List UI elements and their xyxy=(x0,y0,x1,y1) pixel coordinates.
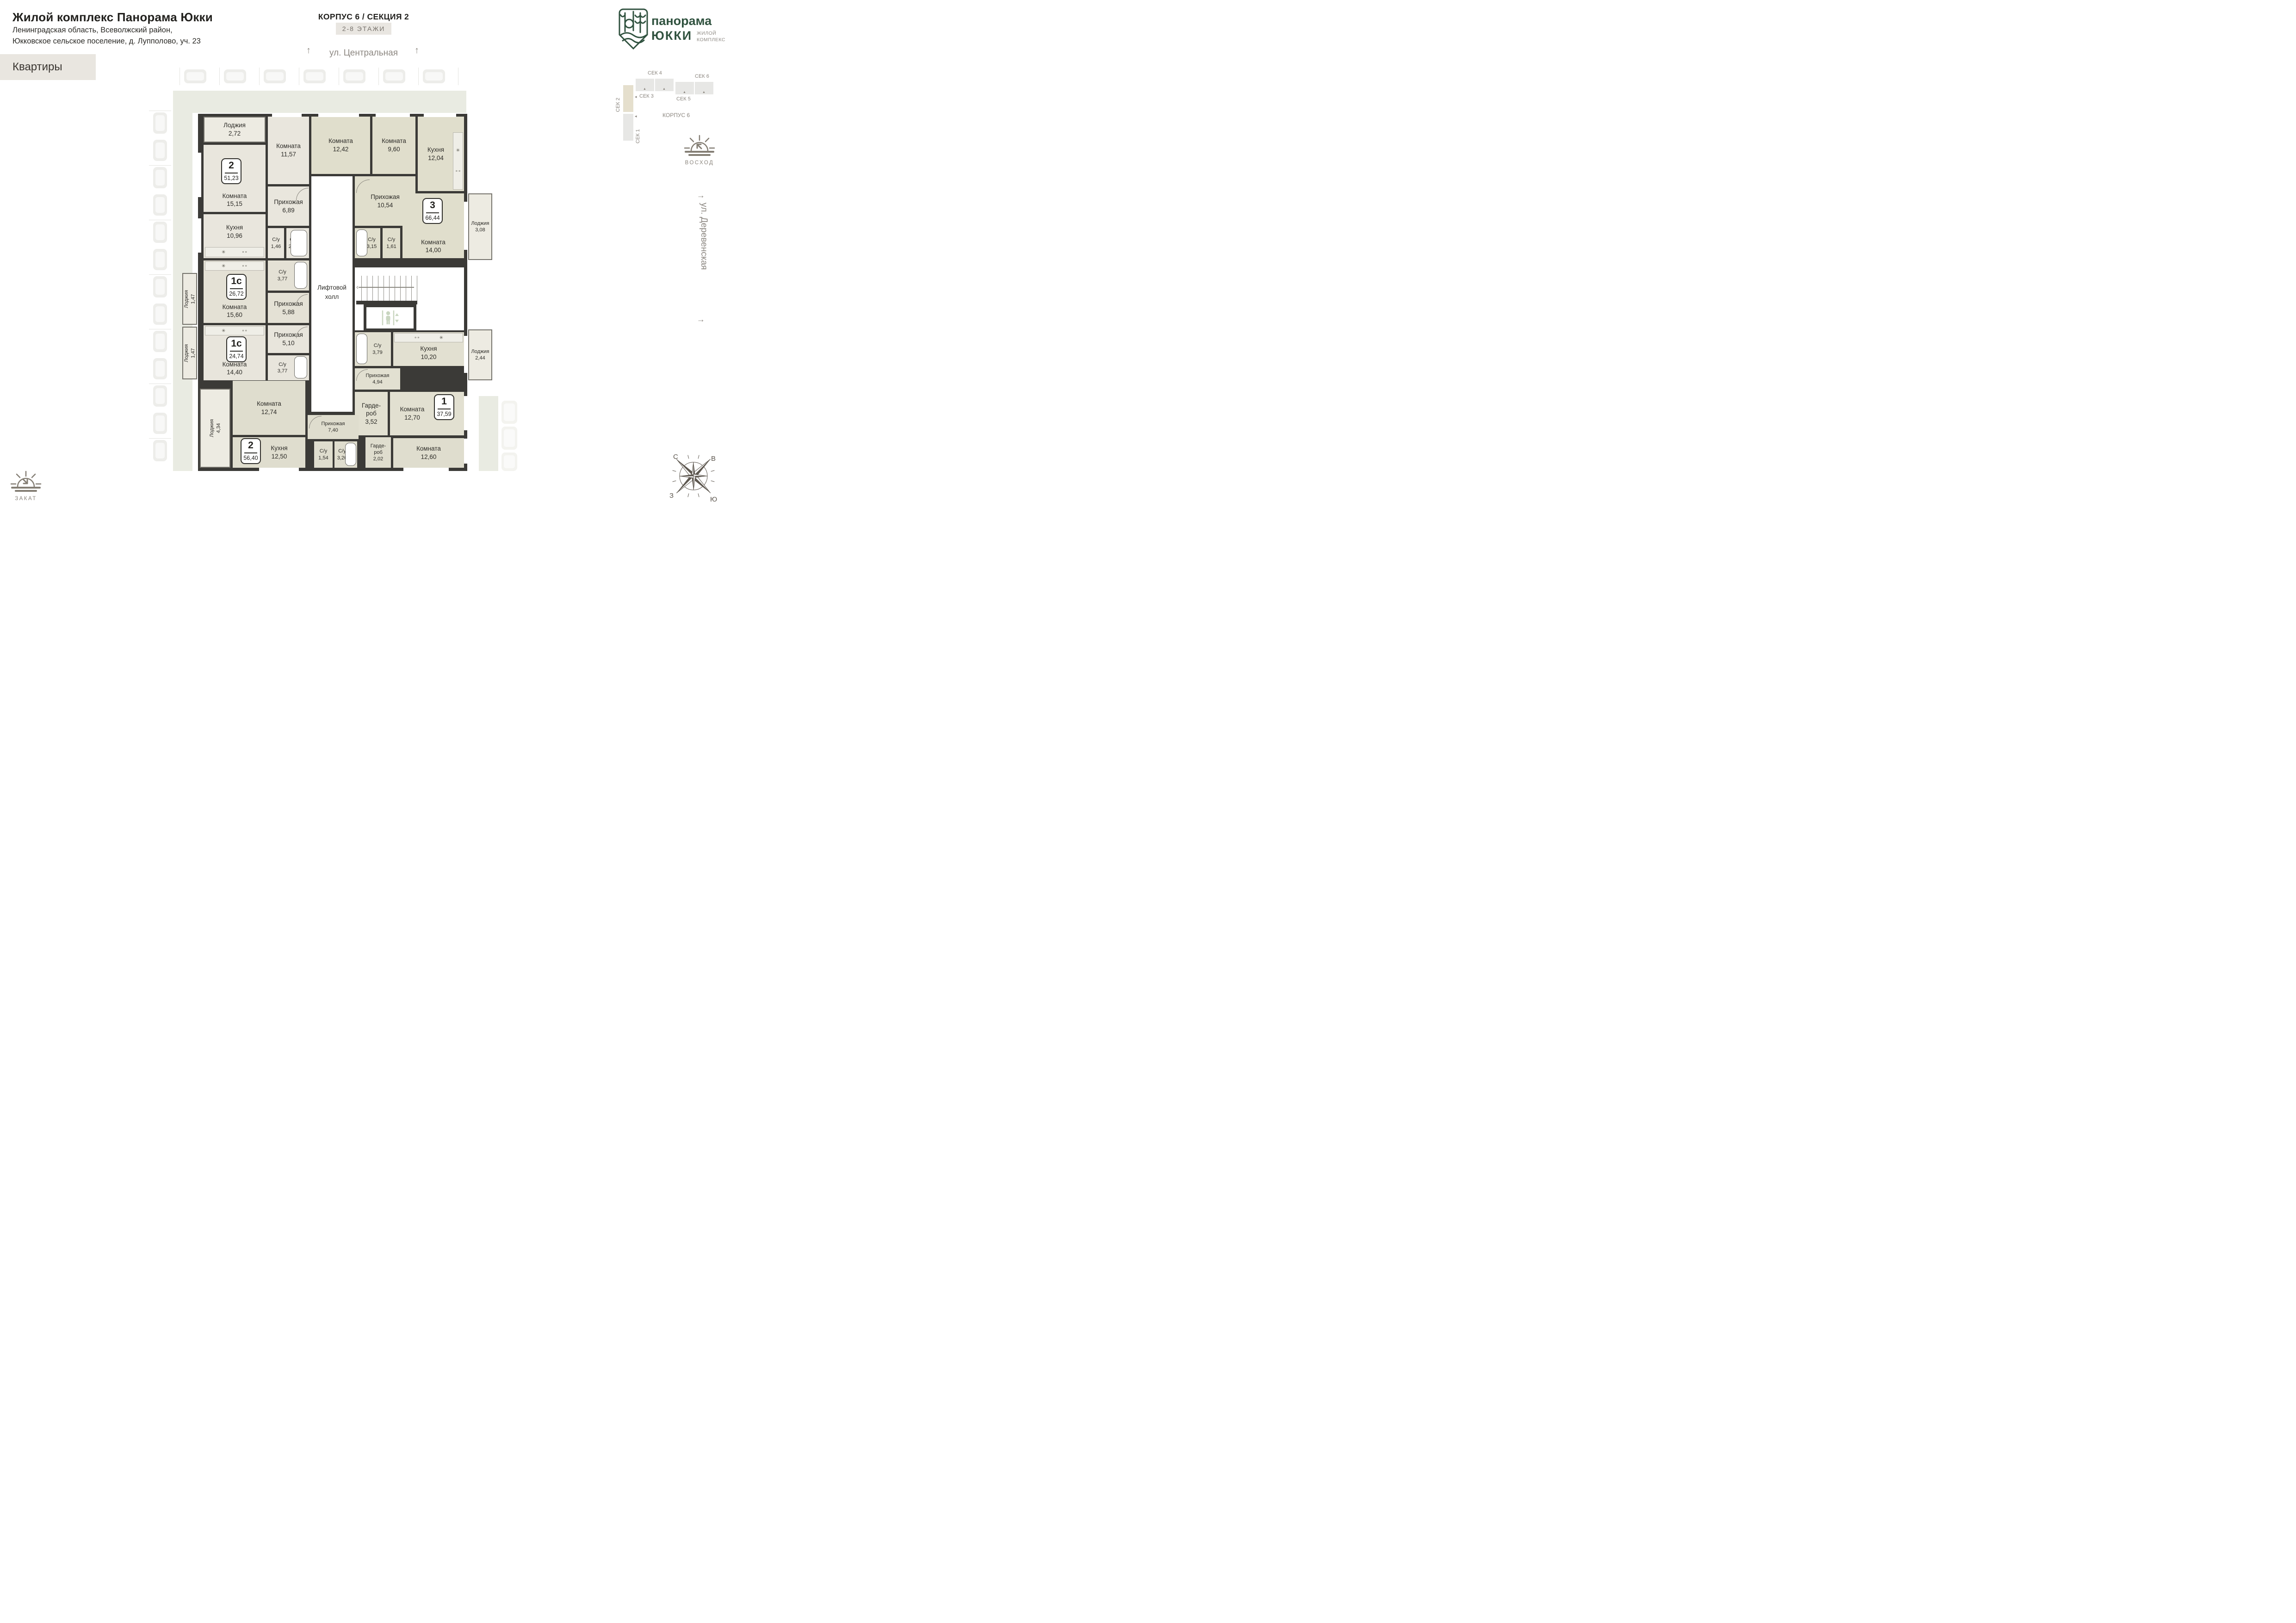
logo-tagline-1: ЖИЛОЙ xyxy=(697,31,716,36)
stove-icon: ∘∘ xyxy=(241,264,248,269)
sink-icon: ✳ xyxy=(222,250,225,255)
car-icon xyxy=(153,112,167,134)
logo-tagline-2: КОМПЛЕКС xyxy=(697,37,725,43)
sink-icon: ✳ xyxy=(222,328,225,334)
minimap-label-sec1: СЕК 1 xyxy=(635,119,641,143)
car-icon xyxy=(501,401,517,424)
logo-brand-bottom: ЮККИ xyxy=(651,29,692,43)
parking-divider xyxy=(149,274,171,275)
car-icon xyxy=(224,69,246,83)
parking-divider xyxy=(458,68,458,85)
bathtub xyxy=(294,356,307,378)
car-icon xyxy=(501,452,517,471)
compass-north-label: С xyxy=(673,453,678,461)
car-icon xyxy=(303,69,326,83)
minimap-label-sec5: СЕК 5 xyxy=(676,96,691,102)
room-loggia-1-47-lower[interactable]: Лоджия1,47 xyxy=(182,327,197,379)
room-komnata-12-74[interactable]: Комната12,74 xyxy=(233,381,305,435)
floorplan-page: Жилой комплекс Панорама Юкки Ленинградск… xyxy=(0,0,725,513)
car-icon xyxy=(153,385,167,407)
entrance-marker-icon: ▲ xyxy=(683,91,686,94)
stairs-arrow-icon: ‹ xyxy=(356,283,359,291)
entrance-marker-icon: ▲ xyxy=(702,91,706,94)
window xyxy=(376,114,410,117)
window xyxy=(198,218,201,253)
parking-divider xyxy=(149,220,171,220)
apartment-badge-2-5640[interactable]: 256,40 xyxy=(241,438,261,464)
wall-segment xyxy=(356,301,417,304)
floors-range: 2-8 ЭТАЖИ xyxy=(296,23,431,35)
lift-hall-label: Лифтовойхолл xyxy=(311,283,353,301)
compass-east-label: В xyxy=(711,455,716,463)
parking-divider xyxy=(418,68,419,85)
stove-icon: ∘∘ xyxy=(241,328,248,334)
bathtub xyxy=(291,230,307,256)
stairs xyxy=(356,276,417,301)
sunset-label: ЗАКАТ xyxy=(7,496,44,502)
car-icon xyxy=(153,222,167,243)
window xyxy=(464,439,467,464)
car-icon xyxy=(153,358,167,379)
parking-divider xyxy=(149,329,171,329)
window xyxy=(464,396,467,430)
room-komnata-12-60[interactable]: Комната12,60 xyxy=(393,438,464,468)
minimap-sec1-block[interactable] xyxy=(623,114,633,141)
entrance-marker-icon: ▲ xyxy=(662,87,666,91)
street-band-right xyxy=(479,396,498,471)
car-icon xyxy=(343,69,365,83)
minimap-corpus-label: КОРПУС 6 xyxy=(662,112,690,118)
room-loggia-3-08[interactable]: Лоджия3,08 xyxy=(468,193,492,260)
room-loggia-2-44[interactable]: Лоджия2,44 xyxy=(468,329,492,380)
car-icon xyxy=(153,413,167,434)
logo-brand-top: панорама xyxy=(651,14,712,28)
car-icon xyxy=(153,440,167,461)
car-icon xyxy=(383,69,405,83)
car-icon xyxy=(423,69,445,83)
car-icon xyxy=(153,276,167,297)
parking-divider xyxy=(219,68,220,85)
car-icon xyxy=(153,331,167,352)
arrow-left-icon: ◂ xyxy=(635,94,637,99)
sink-icon: ✳ xyxy=(456,148,460,153)
street-label-top: ул. Центральная xyxy=(296,48,431,58)
logo-shield-icon xyxy=(619,8,648,50)
apartment-badge-1s-2474[interactable]: 1с24,74 xyxy=(226,336,247,362)
arrow-right-icon: → xyxy=(697,191,705,200)
window xyxy=(198,153,201,197)
room-loggia-4-34[interactable]: Лоджия4,34 xyxy=(200,389,230,468)
parking-divider xyxy=(149,384,171,384)
room-loggia-2-72[interactable]: Лоджия2,72 xyxy=(204,117,266,142)
car-icon xyxy=(153,140,167,161)
minimap-label-sec4: СЕК 4 xyxy=(648,70,662,76)
car-icon xyxy=(153,304,167,325)
sunset-icon xyxy=(10,470,42,494)
minimap-label-sec2: СЕК 2 xyxy=(615,85,621,112)
parking-divider xyxy=(259,68,260,85)
address-line-1: Ленинградская область, Всеволжский район… xyxy=(12,26,173,35)
kitchen-counter: ✳∘∘ xyxy=(205,247,264,257)
room-su-1-61[interactable]: С/у1,61 xyxy=(383,228,400,258)
minimap-label-sec3: СЕК 3 xyxy=(639,93,654,99)
compass-rose: С В З Ю xyxy=(665,447,722,505)
street-label-right: ул. Деревенская xyxy=(699,203,709,312)
room-komnata-11-57[interactable]: Комната11,57 xyxy=(268,117,309,184)
car-icon xyxy=(153,167,167,188)
arrow-left-icon: ◂ xyxy=(635,114,637,119)
arrow-up-icon: ↑ xyxy=(415,45,419,56)
elevator-icon xyxy=(380,310,400,326)
apartment-badge-2-5123[interactable]: 251,23 xyxy=(221,158,241,184)
kitchen-counter: ✳∘∘ xyxy=(205,261,264,271)
kitchen-counter: ✳∘∘ xyxy=(453,132,463,190)
bathtub xyxy=(356,334,367,364)
street-band-top xyxy=(173,91,466,113)
minimap-sec2-block-current[interactable] xyxy=(623,85,633,112)
car-icon xyxy=(264,69,286,83)
car-icon xyxy=(501,427,517,450)
bathtub xyxy=(294,262,307,289)
parking-divider xyxy=(378,68,379,85)
room-su-1-46[interactable]: С/у1,46 xyxy=(268,228,284,258)
tab-apartments[interactable]: Квартиры xyxy=(0,54,96,80)
window xyxy=(259,468,299,471)
stove-icon: ∘∘ xyxy=(414,335,420,341)
car-icon xyxy=(184,69,206,83)
window xyxy=(403,468,449,471)
parking-divider xyxy=(299,68,299,85)
car-icon xyxy=(153,194,167,216)
kitchen-counter: ✳∘∘ xyxy=(205,326,264,335)
arrow-right-icon: → xyxy=(697,315,705,324)
arrow-up-icon: ↑ xyxy=(306,45,311,56)
parking-divider xyxy=(149,438,171,439)
compass-west-label: З xyxy=(669,492,674,500)
stove-icon: ∘∘ xyxy=(241,250,248,255)
stove-icon: ∘∘ xyxy=(455,169,461,174)
stairs-direction-line xyxy=(359,287,414,288)
room-komnata-9-60[interactable]: Комната9,60 xyxy=(372,117,415,174)
corpus-section-title: КОРПУС 6 / СЕКЦИЯ 2 xyxy=(296,12,431,22)
bathtub xyxy=(345,443,356,466)
apartment-badge-3-6644[interactable]: 366,44 xyxy=(422,198,443,224)
room-garderob-2-02[interactable]: Гарде- роб2,02 xyxy=(365,437,391,468)
page-title: Жилой комплекс Панорама Юкки xyxy=(12,10,213,25)
room-garderob-3-52[interactable]: Гарде- роб3,52 xyxy=(355,392,388,435)
entrance-marker-icon: ▲ xyxy=(643,87,646,91)
minimap-label-sec6: СЕК 6 xyxy=(695,74,709,79)
window xyxy=(318,114,359,117)
car-icon xyxy=(153,249,167,270)
sunrise-label: ВОСХОД xyxy=(681,160,718,166)
apartment-badge-1s-2672[interactable]: 1с26,72 xyxy=(226,274,247,300)
window xyxy=(464,336,467,373)
compass-south-label: Ю xyxy=(710,496,717,503)
parking-divider xyxy=(149,165,171,166)
sunrise-icon xyxy=(684,134,715,158)
parking-divider xyxy=(339,68,339,85)
window xyxy=(424,114,456,117)
room-loggia-1-47-upper[interactable]: Лоджия1,47 xyxy=(182,273,197,325)
bathtub xyxy=(356,229,367,256)
parking-divider xyxy=(149,111,171,111)
sink-icon: ✳ xyxy=(222,264,225,269)
room-su-1-54[interactable]: С/у1,54 xyxy=(314,441,333,468)
parking-divider xyxy=(179,68,180,85)
address-line-2: Юкковское сельское поселение, д. Лупполо… xyxy=(12,37,201,46)
apartment-badge-1-3759[interactable]: 137,59 xyxy=(434,394,454,420)
room-komnata-12-42[interactable]: Комната12,42 xyxy=(311,117,370,174)
window xyxy=(464,202,467,250)
window xyxy=(272,114,302,117)
kitchen-counter: ∘∘✳ xyxy=(394,333,463,342)
sink-icon: ✳ xyxy=(439,335,443,341)
elevator xyxy=(364,304,416,331)
